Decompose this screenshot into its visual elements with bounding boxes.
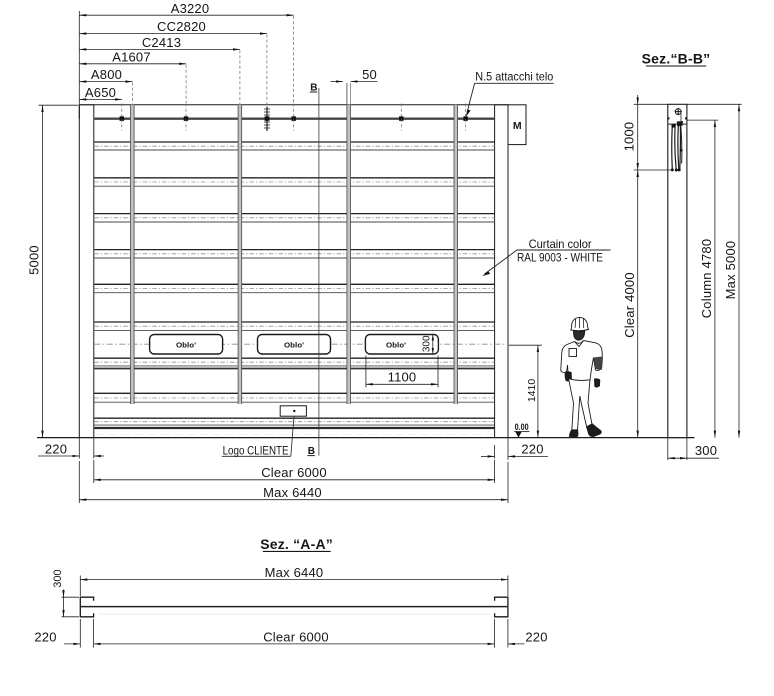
svg-text:Max 6440: Max 6440 xyxy=(265,565,324,580)
svg-text:Max 6440: Max 6440 xyxy=(263,485,322,500)
svg-text:Column 4780: Column 4780 xyxy=(699,239,714,319)
svg-text:C2413: C2413 xyxy=(142,35,181,50)
svg-text:Oblo': Oblo' xyxy=(386,340,406,349)
svg-text:Oblo': Oblo' xyxy=(176,340,196,349)
svg-text:RAL 9003 - WHITE: RAL 9003 - WHITE xyxy=(517,250,603,264)
svg-text:220: 220 xyxy=(521,442,543,457)
svg-text:A1607: A1607 xyxy=(112,49,151,64)
svg-text:50: 50 xyxy=(362,67,377,82)
svg-text:1100: 1100 xyxy=(388,370,417,385)
svg-text:0.00: 0.00 xyxy=(515,422,529,432)
svg-text:1410: 1410 xyxy=(526,379,538,403)
svg-text:Clear 4000: Clear 4000 xyxy=(622,272,637,338)
svg-text:A800: A800 xyxy=(91,67,122,82)
svg-text:M: M xyxy=(513,120,522,132)
svg-text:Oblo': Oblo' xyxy=(284,340,304,349)
svg-text:300: 300 xyxy=(695,443,717,458)
svg-text:1000: 1000 xyxy=(622,122,637,152)
svg-text:Curtain color: Curtain color xyxy=(529,237,592,251)
svg-text:N.5 attacchi telo: N.5 attacchi telo xyxy=(475,70,553,84)
svg-text:Sez. “A-A”: Sez. “A-A” xyxy=(260,536,333,552)
svg-text:Max 5000: Max 5000 xyxy=(723,241,738,300)
svg-text:5000: 5000 xyxy=(27,245,42,275)
svg-text:300: 300 xyxy=(52,569,64,587)
svg-text:Clear 6000: Clear 6000 xyxy=(263,629,329,644)
svg-text:Clear 6000: Clear 6000 xyxy=(261,465,327,480)
svg-text:220: 220 xyxy=(34,629,56,644)
svg-text:Logo CLIENTE: Logo CLIENTE xyxy=(223,443,289,457)
svg-text:300: 300 xyxy=(421,335,432,352)
svg-text:CC2820: CC2820 xyxy=(157,19,206,34)
svg-text:220: 220 xyxy=(525,629,547,644)
svg-text:A650: A650 xyxy=(85,85,116,100)
svg-text:Sez.“B-B”: Sez.“B-B” xyxy=(642,50,711,66)
svg-text:A3220: A3220 xyxy=(171,1,210,16)
svg-text:220: 220 xyxy=(45,441,67,456)
